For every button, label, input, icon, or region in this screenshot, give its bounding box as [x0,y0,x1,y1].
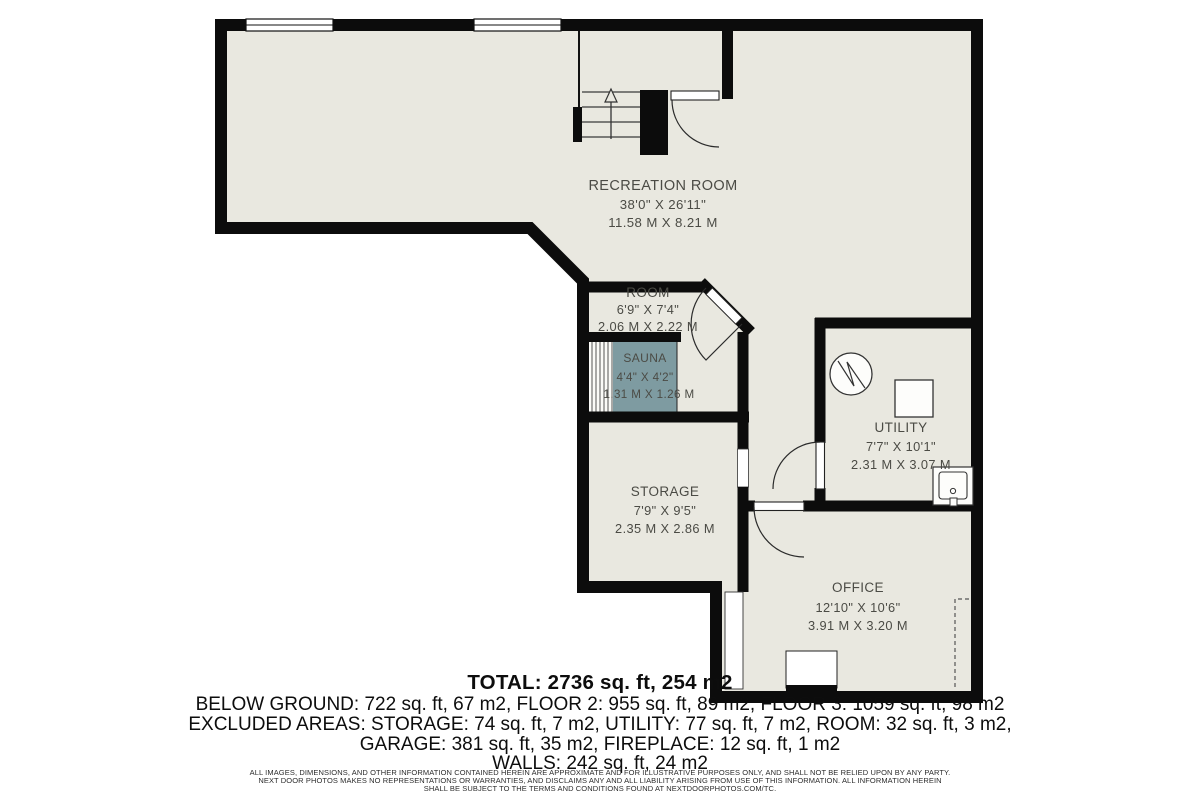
door-opening [738,449,749,487]
room-dim-ft: 12'10" X 10'6" [815,600,900,615]
room-dim-m: 1.31 M X 1.26 M [603,388,694,401]
window-icon [474,19,561,31]
room-label-utility: UTILITY [874,420,927,435]
disclaimer: ALL IMAGES, DIMENSIONS, AND OTHER INFORM… [0,769,1200,794]
total-area-text: TOTAL: 2736 sq. ft, 254 m2 [0,671,1200,695]
utility-sink-icon [933,467,973,506]
door-leaf [754,502,804,511]
room-dim-ft: 4'4" X 4'2" [616,371,673,384]
water-heater-circle-icon [830,353,872,395]
door-leaf [816,442,825,489]
room-dim-ft: 6'9" X 7'4" [617,302,680,317]
room-label-recreation: RECREATION ROOM [588,178,737,194]
room-label-office: OFFICE [832,580,884,595]
room-dim-m: 2.35 M X 2.86 M [615,521,715,536]
room-dim-m: 2.31 M X 3.07 M [851,457,951,472]
room-label-sauna: SAUNA [623,351,666,365]
floor-areas-text: BELOW GROUND: 722 sq. ft, 67 m2, FLOOR 2… [0,694,1200,716]
sauna-bench [589,342,613,412]
room-dim-ft: 38'0" X 26'11" [620,197,706,212]
door-leaf [671,91,719,100]
room-dim-m: 2.06 M X 2.22 M [598,319,698,334]
room-dim-m: 3.91 M X 3.20 M [808,618,908,633]
room-dim-ft: 7'7" X 10'1" [866,439,936,454]
room-dim-m: 11.58 M X 8.21 M [608,215,718,230]
floorplan-page: RECREATION ROOM 38'0" X 26'11" 11.58 M X… [0,0,1200,805]
appliance-square-icon [895,380,933,417]
window-icon [246,19,333,31]
disclaimer-line: SHALL BE SUBJECT TO THE TERMS AND CONDIT… [0,785,1200,793]
stair-wall [640,90,668,155]
room-label-room: ROOM [626,285,670,300]
excluded-areas-text: EXCLUDED AREAS: STORAGE: 74 sq. ft, 7 m2… [0,714,1200,736]
room-label-storage: STORAGE [631,484,700,499]
room-dim-ft: 7'9" X 9'5" [634,503,697,518]
